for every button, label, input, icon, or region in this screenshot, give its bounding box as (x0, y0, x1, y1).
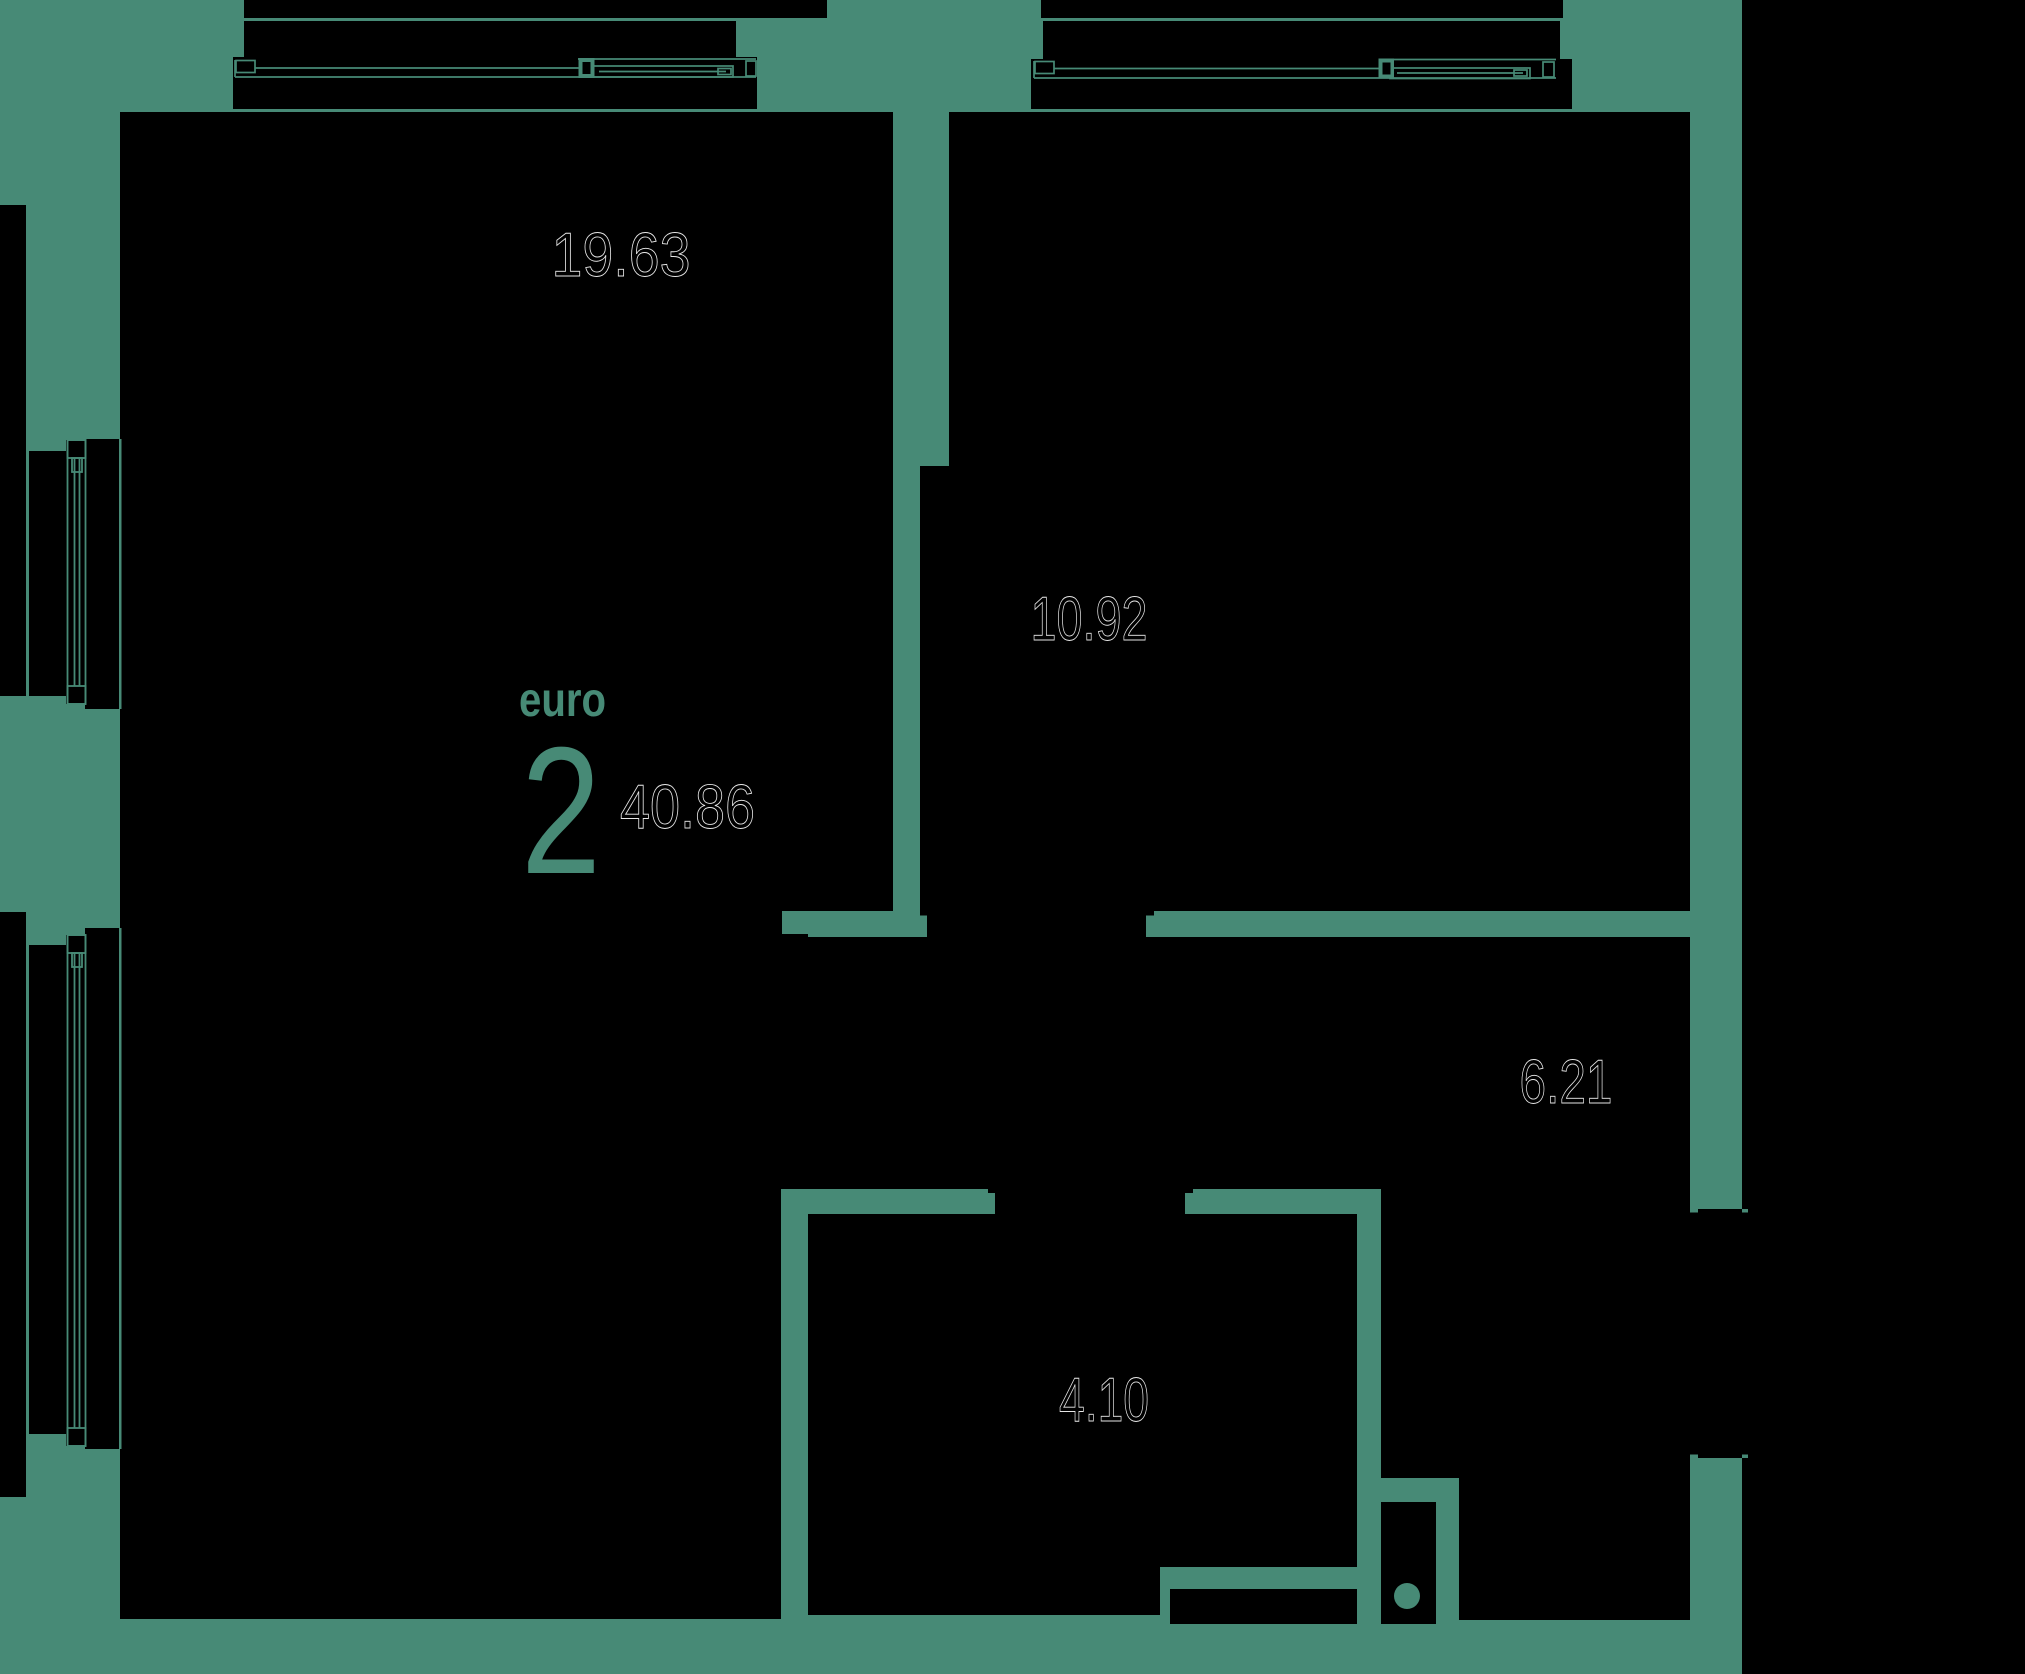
svg-text:40.86: 40.86 (620, 773, 755, 842)
svg-text:10.92: 10.92 (1031, 585, 1148, 654)
svg-text:4.10: 4.10 (1059, 1366, 1149, 1435)
svg-text:6.21: 6.21 (1520, 1048, 1613, 1117)
svg-text:19.63: 19.63 (552, 221, 691, 290)
svg-text:2: 2 (521, 710, 601, 912)
